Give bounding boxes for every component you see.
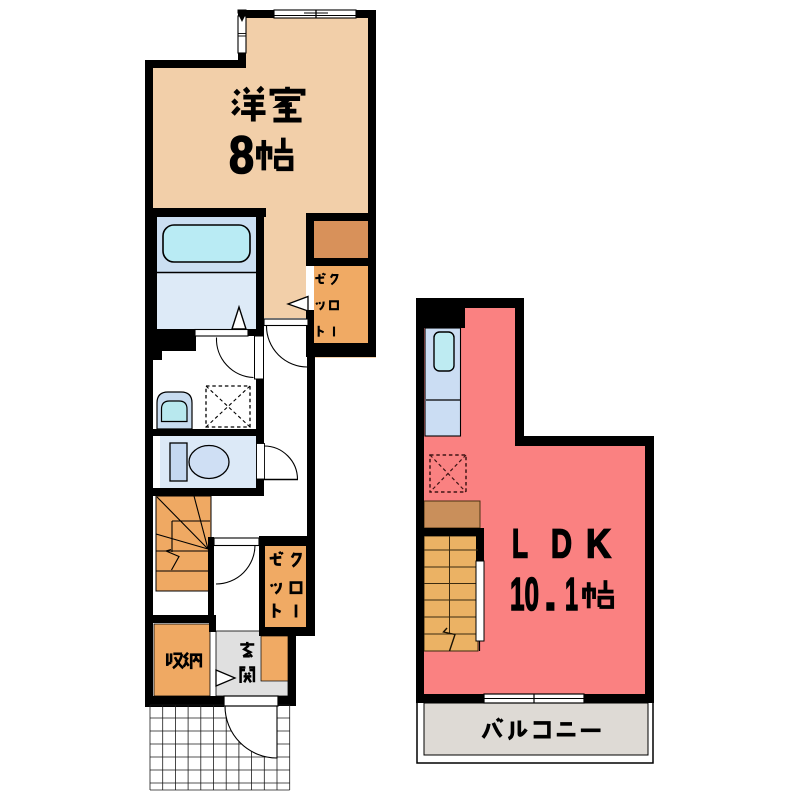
svg-text:8: 8 [229,126,254,185]
svg-text:L: L [512,521,528,567]
svg-text:D: D [551,521,572,567]
svg-text:.: . [544,568,557,620]
svg-text:K: K [586,521,611,567]
svg-text:10: 10 [510,568,539,620]
svg-text:1: 1 [565,568,578,620]
